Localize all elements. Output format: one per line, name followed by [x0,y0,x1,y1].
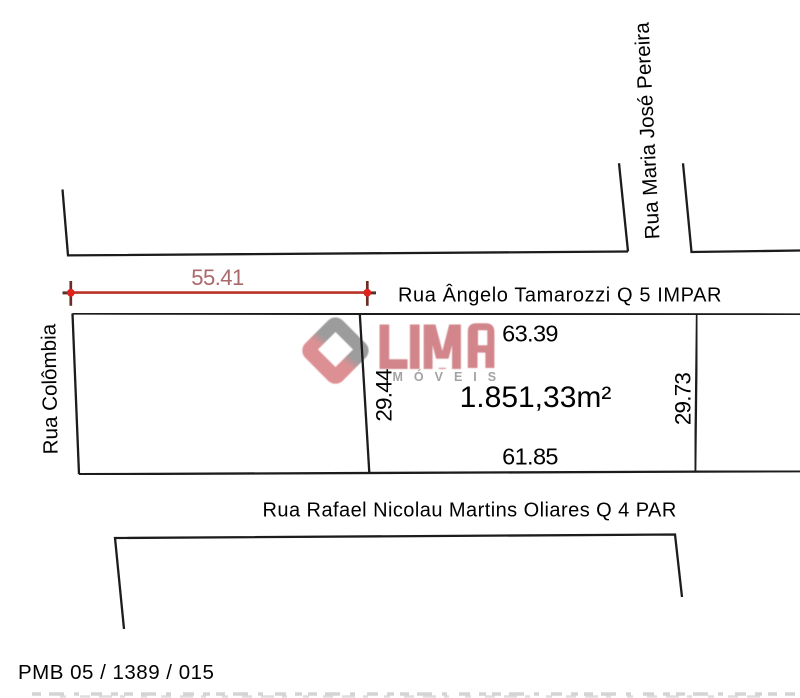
svg-text:Rua Rafael Nicolau Martins Oli: Rua Rafael Nicolau Martins Oliares Q 4 P… [263,500,677,522]
svg-text:Rua Maria José Pereira: Rua Maria José Pereira [631,21,665,240]
svg-text:Rua Colômbia: Rua Colômbia [37,323,62,454]
svg-text:63.39: 63.39 [502,321,558,347]
svg-text:61.85: 61.85 [502,444,558,470]
svg-text:Rua Ângelo Tamarozzi Q 5 IMPAR: Rua Ângelo Tamarozzi Q 5 IMPAR [398,283,722,306]
svg-text:29.73: 29.73 [671,373,696,426]
svg-text:PMB 05 / 1389 / 015: PMB 05 / 1389 / 015 [18,661,214,684]
svg-text:29.44: 29.44 [372,369,397,422]
svg-text:1.851,33m²: 1.851,33m² [460,381,612,414]
svg-text:55.41: 55.41 [191,265,244,290]
